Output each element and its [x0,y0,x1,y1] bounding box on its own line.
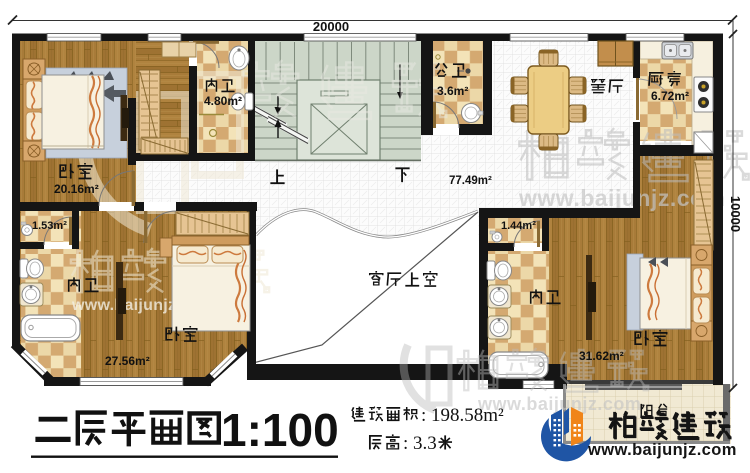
svg-text:3.6m²: 3.6m² [437,84,468,98]
svg-text:: 198.58m²: : 198.58m² [421,405,504,426]
svg-text:www.baijunjz.com: www.baijunjz.com [587,441,737,459]
svg-text:4.80m²: 4.80m² [204,94,242,108]
svg-text:31.62m²: 31.62m² [579,349,624,363]
svg-text:20.16m²: 20.16m² [54,182,99,196]
svg-text:27.56m²: 27.56m² [105,354,150,368]
svg-text:1:100: 1:100 [221,404,339,456]
svg-text:10000: 10000 [728,196,743,232]
svg-text:20000: 20000 [313,19,349,34]
svg-text:1.53m²: 1.53m² [32,220,67,232]
svg-text:77.49m²: 77.49m² [449,175,492,187]
svg-text:1.44m²: 1.44m² [501,220,536,232]
svg-text:6.72m²: 6.72m² [651,89,689,103]
svg-text:: 3.3: : 3.3 [403,433,437,454]
